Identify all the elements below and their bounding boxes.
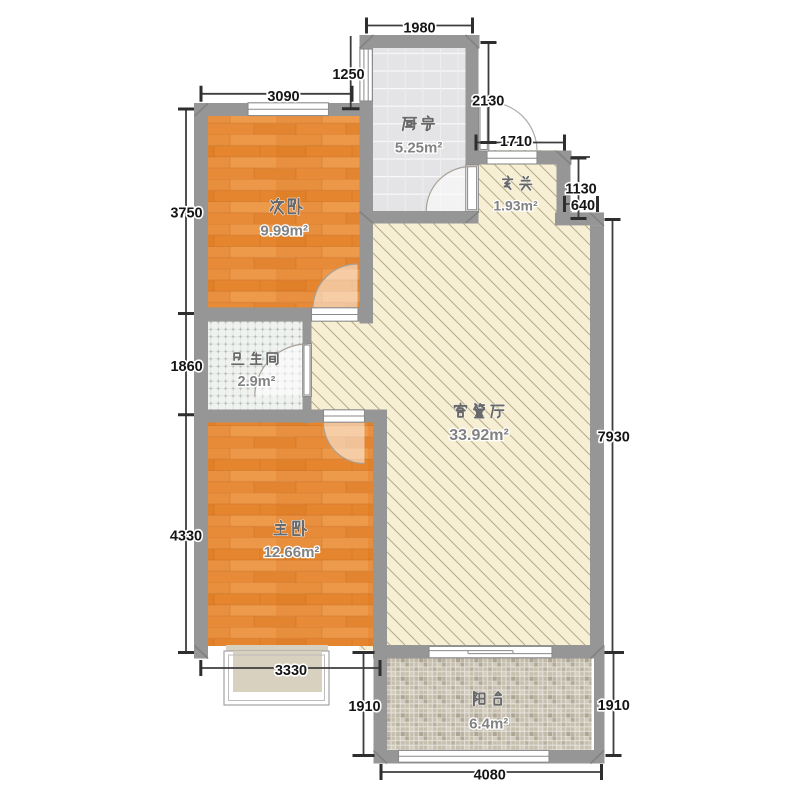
svg-text:3090: 3090 xyxy=(267,89,299,105)
svg-text:640: 640 xyxy=(571,198,595,214)
svg-text:1910: 1910 xyxy=(598,698,630,714)
svg-text:1860: 1860 xyxy=(170,359,202,375)
svg-text:9.99m²: 9.99m² xyxy=(260,223,308,240)
svg-text:1710: 1710 xyxy=(500,134,532,150)
svg-text:6.4m²: 6.4m² xyxy=(469,716,508,733)
svg-text:2.9m²: 2.9m² xyxy=(238,374,276,390)
svg-text:3330: 3330 xyxy=(275,663,307,679)
svg-text:5.25m²: 5.25m² xyxy=(395,140,443,157)
svg-text:1910: 1910 xyxy=(348,699,380,715)
svg-text:12.66m²: 12.66m² xyxy=(264,544,320,561)
svg-text:4080: 4080 xyxy=(474,768,506,784)
svg-text:1.93m²: 1.93m² xyxy=(493,198,538,214)
svg-text:2130: 2130 xyxy=(472,94,504,110)
svg-text:4330: 4330 xyxy=(170,529,202,545)
svg-text:3750: 3750 xyxy=(170,206,202,222)
svg-text:1980: 1980 xyxy=(403,21,435,37)
svg-text:7930: 7930 xyxy=(598,430,630,446)
svg-text:33.92m²: 33.92m² xyxy=(449,427,509,444)
svg-text:1130: 1130 xyxy=(565,182,596,198)
svg-text:1250: 1250 xyxy=(332,67,364,83)
